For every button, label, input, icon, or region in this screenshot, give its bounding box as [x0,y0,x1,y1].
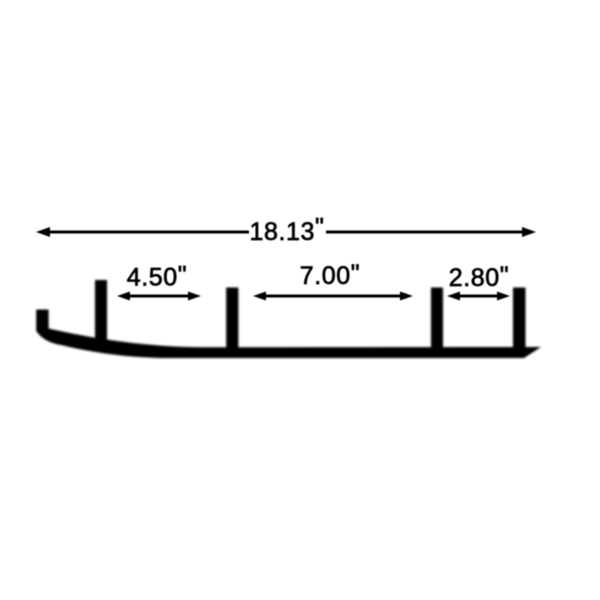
svg-text:18.13": 18.13" [249,214,324,247]
svg-text:4.50": 4.50" [127,262,188,292]
svg-text:2.80": 2.80" [449,262,510,292]
svg-text:7.00": 7.00" [300,260,361,290]
